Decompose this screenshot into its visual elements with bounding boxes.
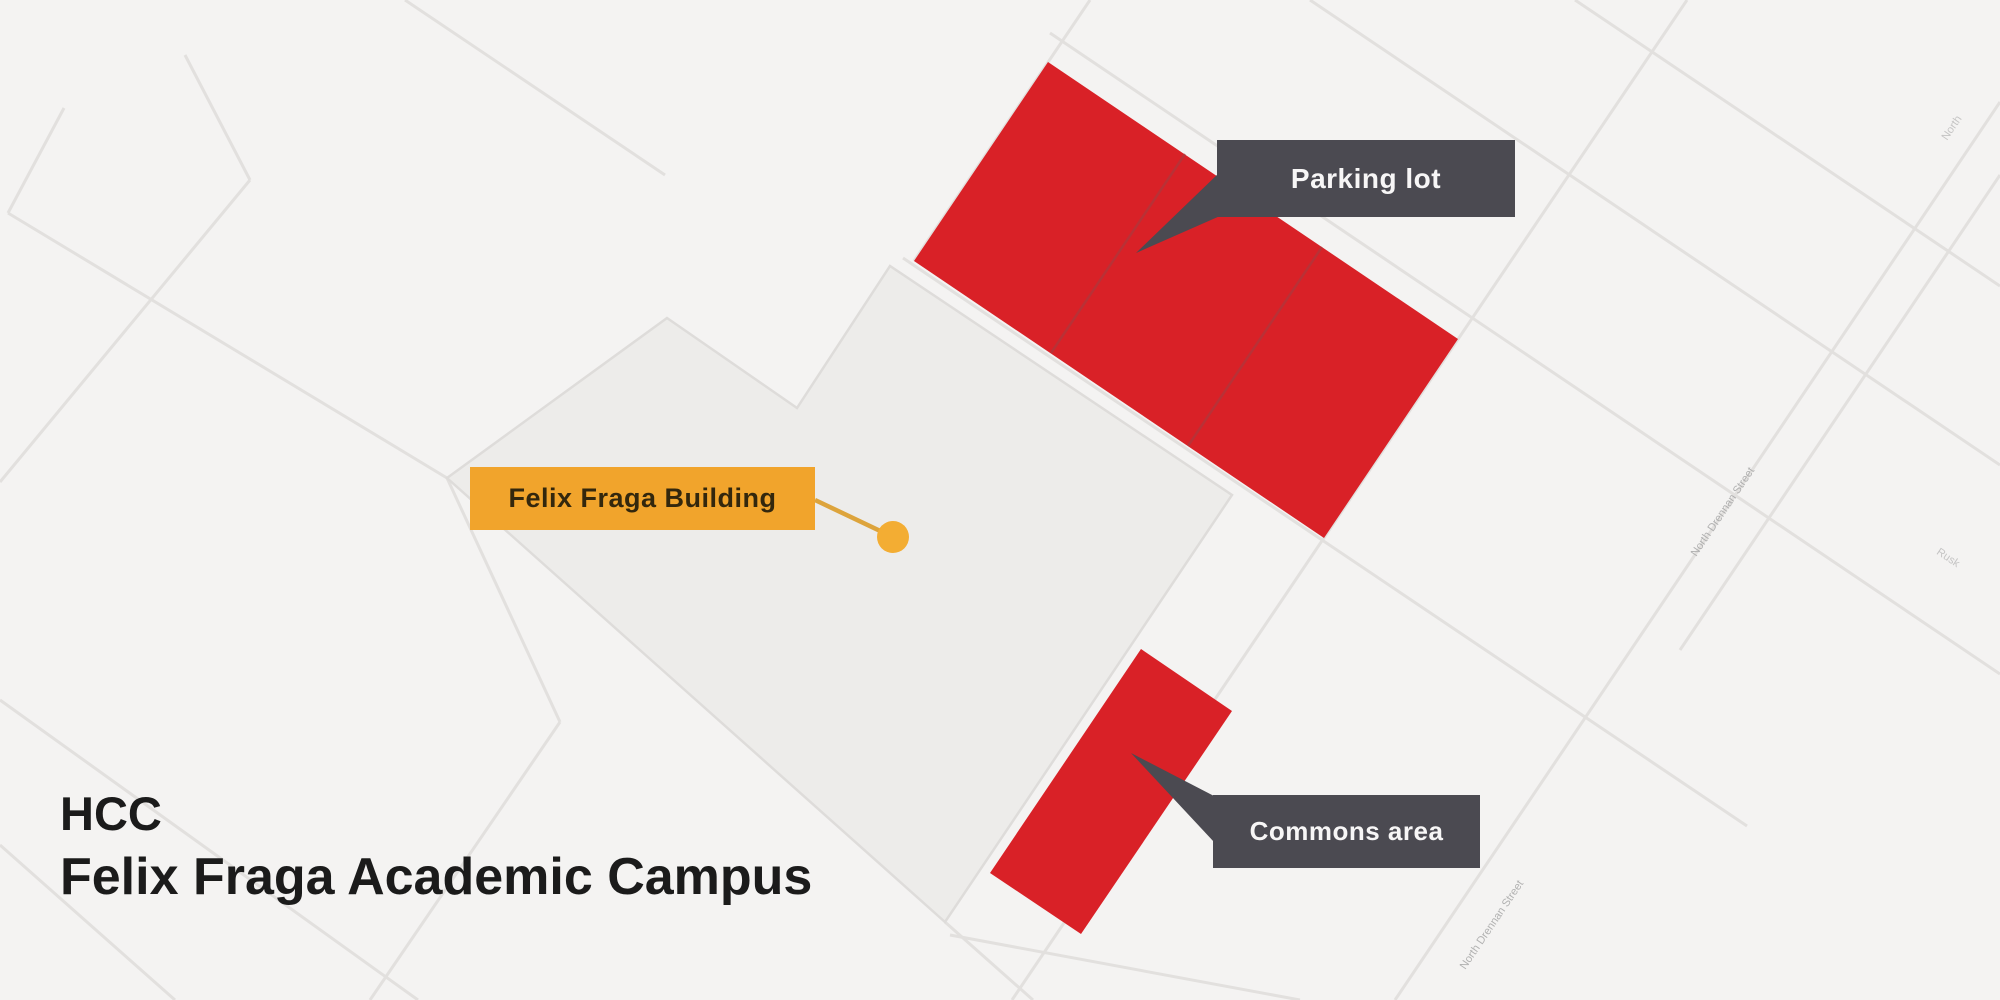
building-marker-dot	[877, 521, 909, 553]
parking-lot-label-text: Parking lot	[1291, 163, 1441, 195]
parking-lot-label: Parking lot	[1217, 140, 1515, 217]
felix-fraga-building-label-text: Felix Fraga Building	[508, 483, 776, 514]
campus-map: Parking lot Commons area Felix Fraga Bui…	[0, 0, 2000, 1000]
map-title-campus: Felix Fraga Academic Campus	[60, 851, 812, 903]
felix-fraga-building-label: Felix Fraga Building	[470, 467, 815, 530]
commons-area-label: Commons area	[1213, 795, 1480, 868]
map-title: HCC Felix Fraga Academic Campus	[60, 790, 812, 903]
map-title-org: HCC	[60, 790, 812, 837]
commons-area-label-text: Commons area	[1250, 816, 1444, 847]
